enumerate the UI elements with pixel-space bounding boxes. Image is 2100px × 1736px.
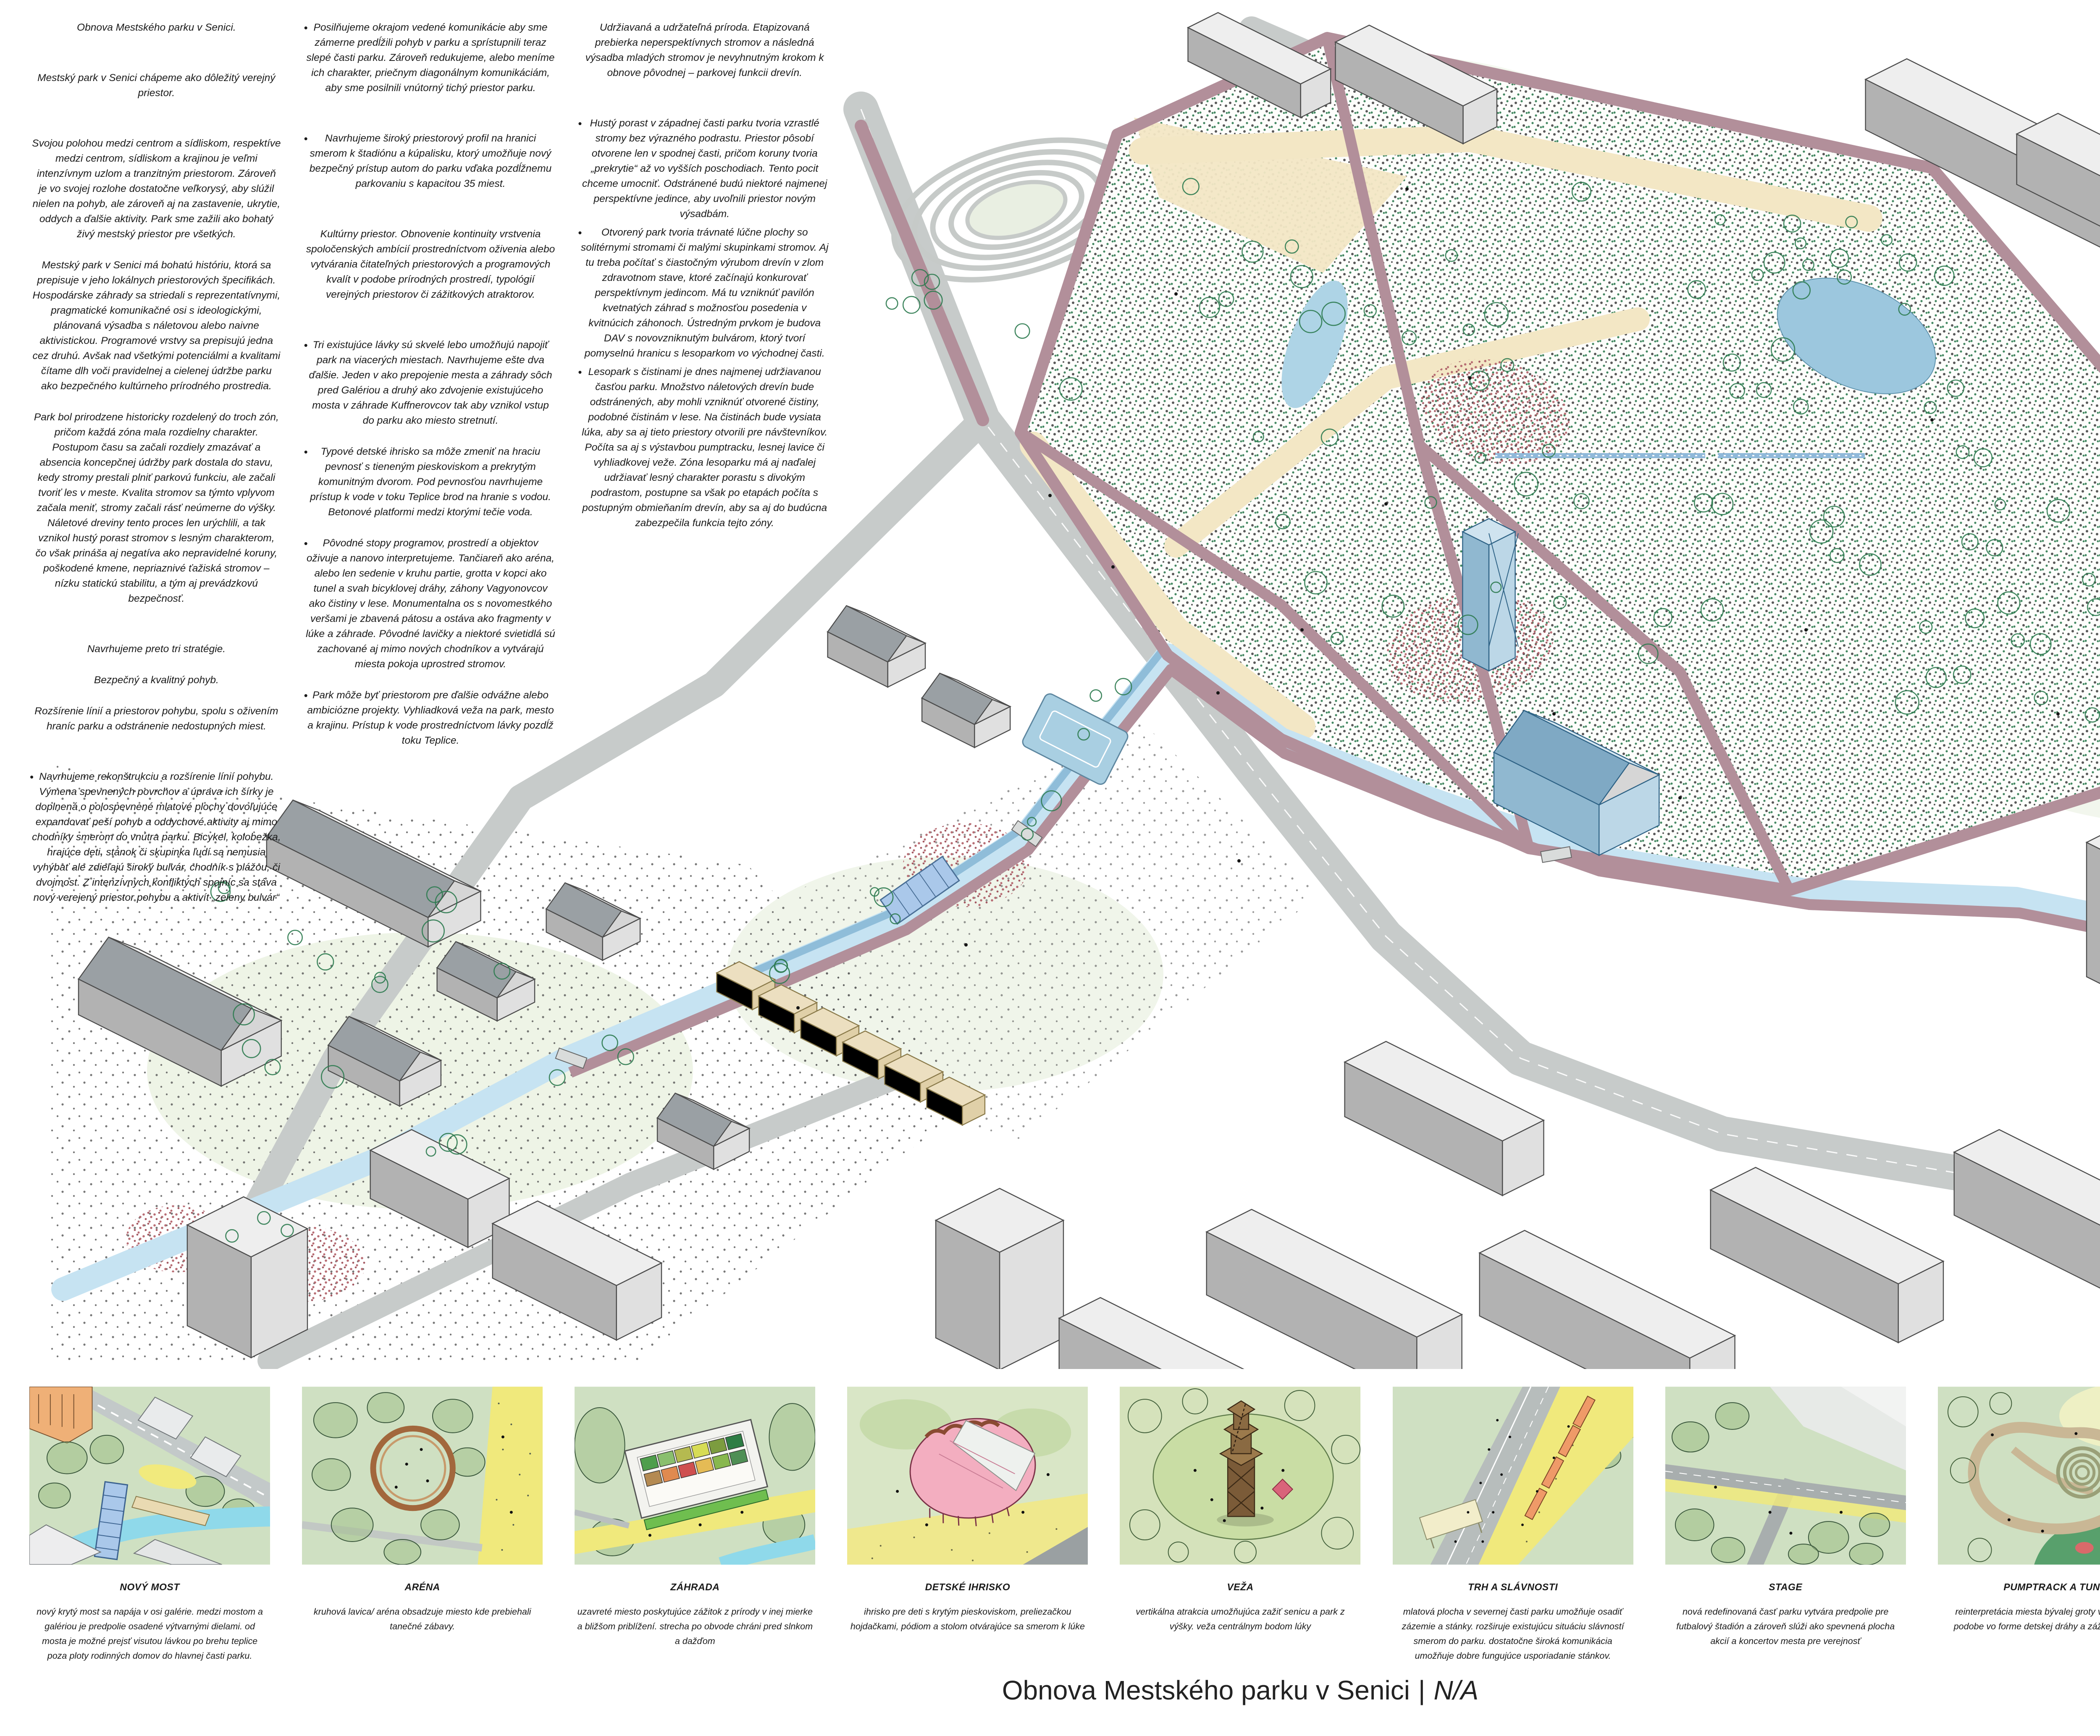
board-title-separator: | <box>1418 1675 1425 1705</box>
vignette-strip: NOVÝ MOST nový krytý most sa napája v os… <box>29 1387 2100 1663</box>
caption-text: nový krytý most sa napája v osi galérie.… <box>29 1605 270 1663</box>
paragraph: Navrhujeme rekonštrukciu a rozšírenie lí… <box>31 769 281 905</box>
caption-text: vertikálna atrakcia umožňujúca zažiť sen… <box>1120 1605 1360 1634</box>
board-title-suffix: N/A <box>1434 1675 1479 1705</box>
paragraph: Posilňujeme okrajom vedené komunikácie a… <box>306 20 556 96</box>
thumbnail-caption: ZÁHRADA uzavreté miesto poskytujúce záži… <box>575 1581 815 1649</box>
thumbnail-stage: STAGE nová redefinovaná časť parku vytvá… <box>1665 1387 1906 1663</box>
caption-text: kruhová lavica/ aréna obsadzuje miesto k… <box>302 1605 543 1634</box>
thumbnail-caption: DETSKÉ IHRISKO ihrisko pre deti s krytým… <box>847 1581 1088 1634</box>
text-column-3: Udržiavaná a udržateľná príroda. Etapizo… <box>580 20 829 921</box>
paragraph: Obnova Mestského parku v Senici. <box>31 20 281 35</box>
caption-title: STAGE <box>1665 1581 1906 1593</box>
board-title: Obnova Mestského parku v Senici|N/A <box>0 1675 2100 1706</box>
caption-title: ARÉNA <box>302 1581 543 1593</box>
paragraph: Tri existujúce lávky sú skvelé lebo umož… <box>306 338 556 428</box>
board-title-text: Obnova Mestského parku v Senici <box>1002 1675 1410 1705</box>
veza-illustration <box>1120 1387 1360 1565</box>
paragraph: Park bol prirodzene historicky rozdelený… <box>31 410 281 606</box>
caption-title: VEŽA <box>1120 1581 1360 1593</box>
text-column-1: Obnova Mestského parku v Senici. Mestský… <box>31 20 281 921</box>
thumbnail-caption: NOVÝ MOST nový krytý most sa napája v os… <box>29 1581 270 1663</box>
project-description: Obnova Mestského parku v Senici. Mestský… <box>31 20 829 921</box>
paragraph: Kultúrny priestor. Obnovenie kontinuity … <box>306 227 556 302</box>
thumbnail-caption: ARÉNA kruhová lavica/ aréna obsadzuje mi… <box>302 1581 543 1634</box>
detske-ihrisko-illustration <box>847 1387 1088 1565</box>
paragraph: Udržiavaná a udržateľná príroda. Etapizo… <box>580 20 829 81</box>
paragraph: Rozšírenie línií a priestorov pohybu, sp… <box>31 704 281 734</box>
thumbnail-detske-ihrisko: DETSKÉ IHRISKO ihrisko pre deti s krytým… <box>847 1387 1088 1663</box>
paragraph: Lesopark s čistinami je dnes najmenej ud… <box>580 365 829 531</box>
caption-text: reinterpretácia miesta bývalej groty v n… <box>1938 1605 2100 1634</box>
thumbnail-arena: ARÉNA kruhová lavica/ aréna obsadzuje mi… <box>302 1387 543 1663</box>
caption-text: nová redefinovaná časť parku vytvára pre… <box>1665 1605 1906 1649</box>
caption-text: uzavreté miesto poskytujúce zážitok z pr… <box>575 1605 815 1649</box>
caption-title: TRH A SLÁVNOSTI <box>1393 1581 1633 1593</box>
thumbnail-caption: STAGE nová redefinovaná časť parku vytvá… <box>1665 1581 1906 1649</box>
thumbnail-zahrada: ZÁHRADA uzavreté miesto poskytujúce záži… <box>575 1387 815 1663</box>
caption-text: mlatová plocha v severnej časti parku um… <box>1393 1605 1633 1663</box>
text-column-2: Posilňujeme okrajom vedené komunikácie a… <box>306 20 556 921</box>
thumbnail-trh-a-slavnosti: TRH A SLÁVNOSTI mlatová plocha v severne… <box>1393 1387 1633 1663</box>
paragraph: Otvorený park tvoria trávnaté lúčne ploc… <box>580 225 829 361</box>
novy-most-illustration <box>29 1387 270 1565</box>
paragraph: Hustý porast v západnej časti parku tvor… <box>580 116 829 222</box>
thumbnail-caption: TRH A SLÁVNOSTI mlatová plocha v severne… <box>1393 1581 1633 1663</box>
caption-title: NOVÝ MOST <box>29 1581 270 1593</box>
zahrada-illustration <box>575 1387 815 1565</box>
caption-title: DETSKÉ IHRISKO <box>847 1581 1088 1593</box>
thumbnail-caption: PUMPTRACK A TUNEL reinterpretácia miesta… <box>1938 1581 2100 1634</box>
paragraph: Navrhujeme preto tri stratégie. <box>31 642 281 657</box>
paragraph: Pôvodné stopy programov, prostredí a obj… <box>306 536 556 672</box>
pumptrack-a-tunel-illustration <box>1938 1387 2100 1565</box>
paragraph: Mestský park v Senici má bohatú históriu… <box>31 258 281 394</box>
trh-a-slavnosti-illustration <box>1393 1387 1633 1565</box>
thumbnail-caption: VEŽA vertikálna atrakcia umožňujúca zaži… <box>1120 1581 1360 1634</box>
paragraph: Mestský park v Senici chápeme ako dôleži… <box>31 71 281 101</box>
paragraph: Park môže byť priestorom pre ďalšie odvá… <box>306 688 556 748</box>
paragraph: Bezpečný a kvalitný pohyb. <box>31 673 281 688</box>
caption-title: ZÁHRADA <box>575 1581 815 1593</box>
thumbnail-pumptrack-a-tunel: PUMPTRACK A TUNEL reinterpretácia miesta… <box>1938 1387 2100 1663</box>
paragraph: Svojou polohou medzi centrom a sídliskom… <box>31 136 281 242</box>
paragraph: Navrhujeme široký priestorový profil na … <box>306 131 556 191</box>
paragraph: Typové detské ihrisko sa môže zmeniť na … <box>306 444 556 520</box>
caption-text: ihrisko pre deti s krytým pieskoviskom, … <box>847 1605 1088 1634</box>
stage-illustration <box>1665 1387 1906 1565</box>
thumbnail-veza: VEŽA vertikálna atrakcia umožňujúca zaži… <box>1120 1387 1360 1663</box>
thumbnail-novy-most: NOVÝ MOST nový krytý most sa napája v os… <box>29 1387 270 1663</box>
arena-illustration <box>302 1387 543 1565</box>
caption-title: PUMPTRACK A TUNEL <box>1938 1581 2100 1593</box>
